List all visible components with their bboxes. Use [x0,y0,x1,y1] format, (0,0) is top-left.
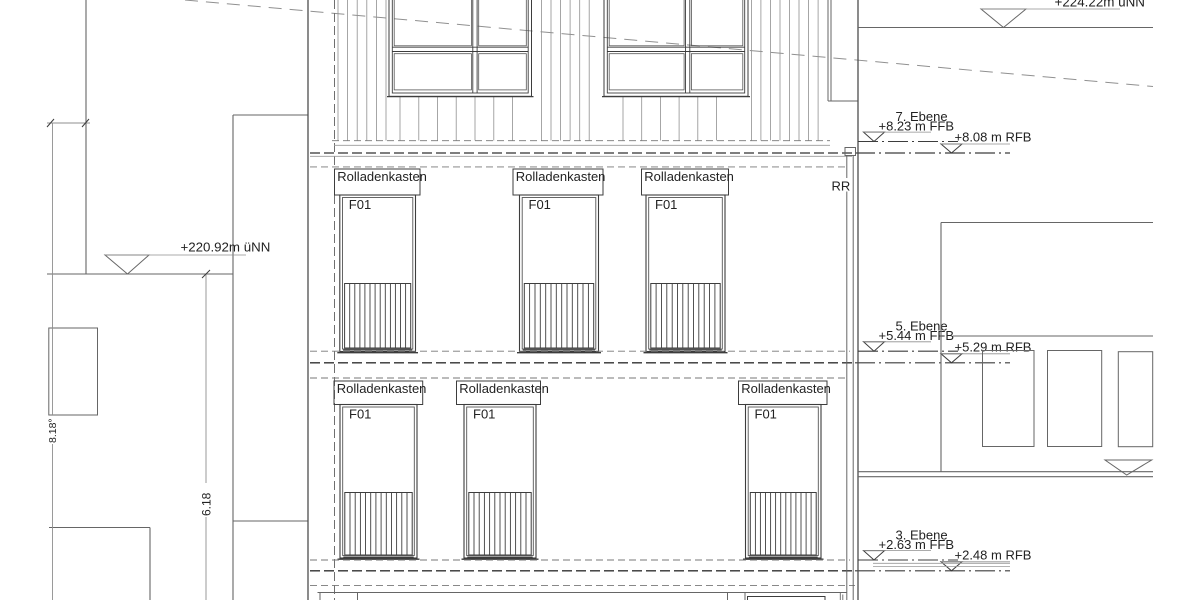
svg-text:Rolladenkasten: Rolladenkasten [337,381,427,396]
svg-text:F01: F01 [755,406,777,421]
svg-text:+8.23 m FFB: +8.23 m FFB [879,119,955,134]
svg-text:F01: F01 [473,406,495,421]
svg-text:RR: RR [832,179,851,194]
svg-text:+5.44 m FFB: +5.44 m FFB [879,328,955,343]
svg-text:+2.48 m RFB: +2.48 m RFB [955,547,1032,562]
svg-text:Rolladenkasten: Rolladenkasten [516,169,606,184]
svg-text:F01: F01 [655,197,677,212]
svg-text:+220.92m üNN: +220.92m üNN [181,240,271,255]
svg-text:F01: F01 [349,197,371,212]
svg-text:+224.22m üNN: +224.22m üNN [1055,0,1145,10]
svg-text:Rolladenkasten: Rolladenkasten [459,381,549,396]
svg-text:Rolladenkasten: Rolladenkasten [644,169,734,184]
svg-text:+5.29 m RFB: +5.29 m RFB [955,339,1032,354]
svg-text:8.18°: 8.18° [47,418,59,443]
svg-text:Rolladenkasten: Rolladenkasten [741,381,831,396]
svg-text:F01: F01 [529,197,551,212]
svg-text:Rolladenkasten: Rolladenkasten [337,169,427,184]
svg-text:F01: F01 [349,406,371,421]
svg-text:6.18: 6.18 [200,492,214,516]
svg-text:+2.63 m FFB: +2.63 m FFB [879,537,955,552]
svg-text:+8.08 m RFB: +8.08 m RFB [955,130,1032,145]
